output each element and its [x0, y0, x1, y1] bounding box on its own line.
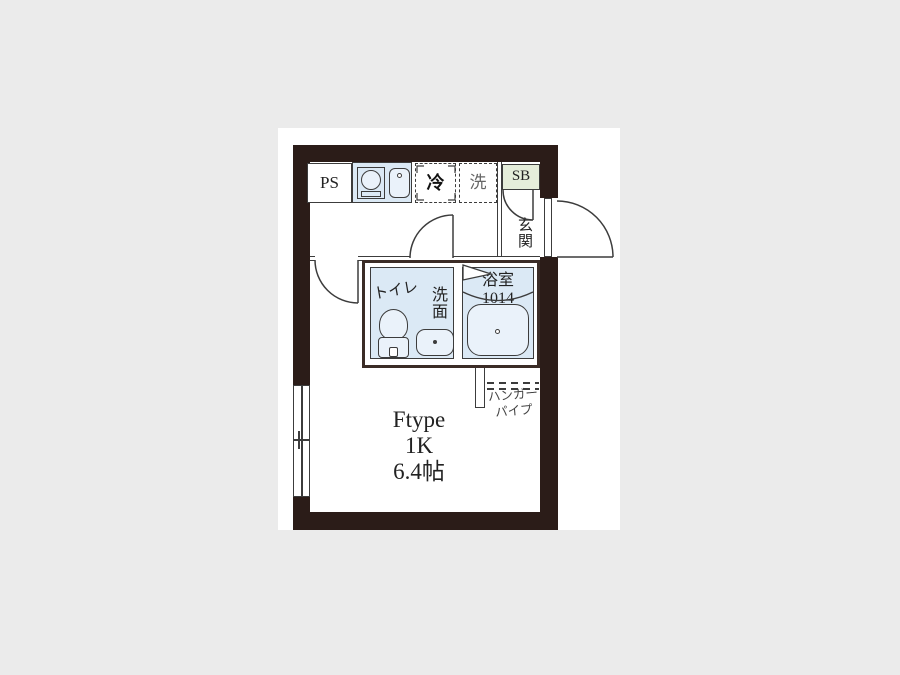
stove-grill-icon — [361, 191, 381, 197]
washroom-label: 洗面 — [426, 280, 446, 326]
sink-faucet-dot — [397, 173, 402, 178]
kitchen-sink-icon — [389, 168, 410, 198]
room-type-label: Ftype — [339, 407, 499, 433]
page-background: PS 冷 洗 SB 玄関 — [0, 0, 900, 675]
hall-wall-left — [310, 256, 315, 261]
wall-right-upper — [540, 145, 558, 198]
bathtub-icon — [467, 304, 529, 356]
window-tick — [298, 431, 300, 449]
kitchen-counter — [352, 162, 412, 203]
stove-burner-icon — [361, 170, 381, 190]
shoebox: SB — [502, 164, 540, 190]
stove-unit — [357, 167, 385, 199]
entrance-wall — [497, 162, 502, 258]
room-size-label: 6.4帖 — [339, 459, 499, 485]
entrance-door-arc — [557, 201, 613, 257]
wall-right-lower — [540, 257, 558, 530]
washer-label: 洗 — [470, 173, 487, 193]
shoebox-label: SB — [512, 168, 530, 185]
bathroom-size-label: 1014 — [466, 290, 530, 308]
toilet-bowl-icon — [379, 309, 408, 340]
toilet-flush-icon — [389, 347, 398, 357]
window-left — [293, 385, 310, 497]
washbasin-icon — [416, 329, 454, 356]
washroom-door-arc — [410, 215, 453, 258]
window-pane-line — [301, 386, 303, 496]
wall-top — [293, 145, 558, 162]
floorplan-canvas: PS 冷 洗 SB 玄関 — [278, 128, 620, 530]
washbasin-drain-dot — [433, 340, 437, 344]
bathroom-label: 浴室 — [466, 272, 530, 290]
entrance-label: 玄関 — [512, 208, 532, 258]
washer-space-box: 洗 — [459, 163, 497, 203]
bathtub-drain-dot — [495, 329, 500, 334]
room-label-group: Ftype 1K 6.4帖 — [339, 407, 499, 485]
pipe-space-label: PS — [320, 173, 339, 193]
room-layout-label: 1K — [339, 433, 499, 459]
pipe-space-box: PS — [307, 163, 352, 203]
window-divider — [294, 439, 309, 441]
main-room-door-arc — [315, 260, 358, 303]
refrigerator-label: 冷 — [427, 173, 445, 194]
bathroom-label-group: 浴室 1014 — [466, 272, 530, 309]
wall-bottom — [293, 512, 558, 530]
entrance-door-frame — [544, 198, 552, 257]
refrigerator-space-box: 冷 — [415, 163, 456, 203]
